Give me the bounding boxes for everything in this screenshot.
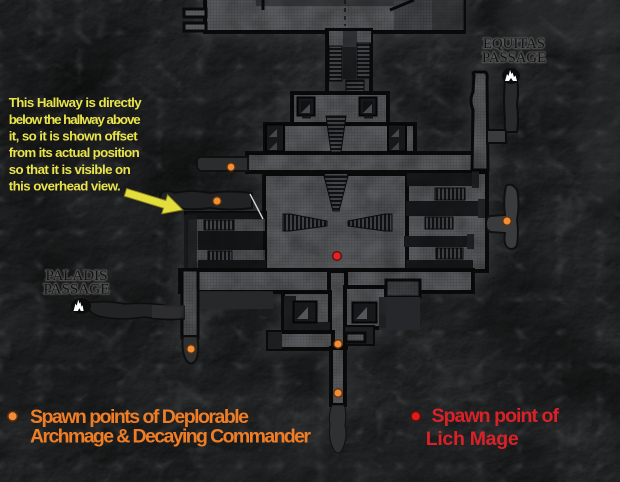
svg-text:Spawn point of: Spawn point of <box>432 405 560 427</box>
svg-text:PASSAGE: PASSAGE <box>44 282 110 298</box>
svg-text:Lich Mage: Lich Mage <box>426 428 519 450</box>
svg-text:it, so it is shown offset: it, so it is shown offset <box>9 129 139 144</box>
svg-text:This Hallway is directly: This Hallway is directly <box>9 95 143 110</box>
svg-text:PASSAGE: PASSAGE <box>482 50 546 66</box>
svg-text:this overhead view.: this overhead view. <box>9 179 121 194</box>
svg-text:Archmage & Decaying Commander: Archmage & Decaying Commander <box>30 426 311 448</box>
svg-text:so that it is visible on: so that it is visible on <box>9 162 131 177</box>
svg-text:below the hallway above: below the hallway above <box>9 112 141 127</box>
svg-text:from its actual position: from its actual position <box>9 145 140 160</box>
